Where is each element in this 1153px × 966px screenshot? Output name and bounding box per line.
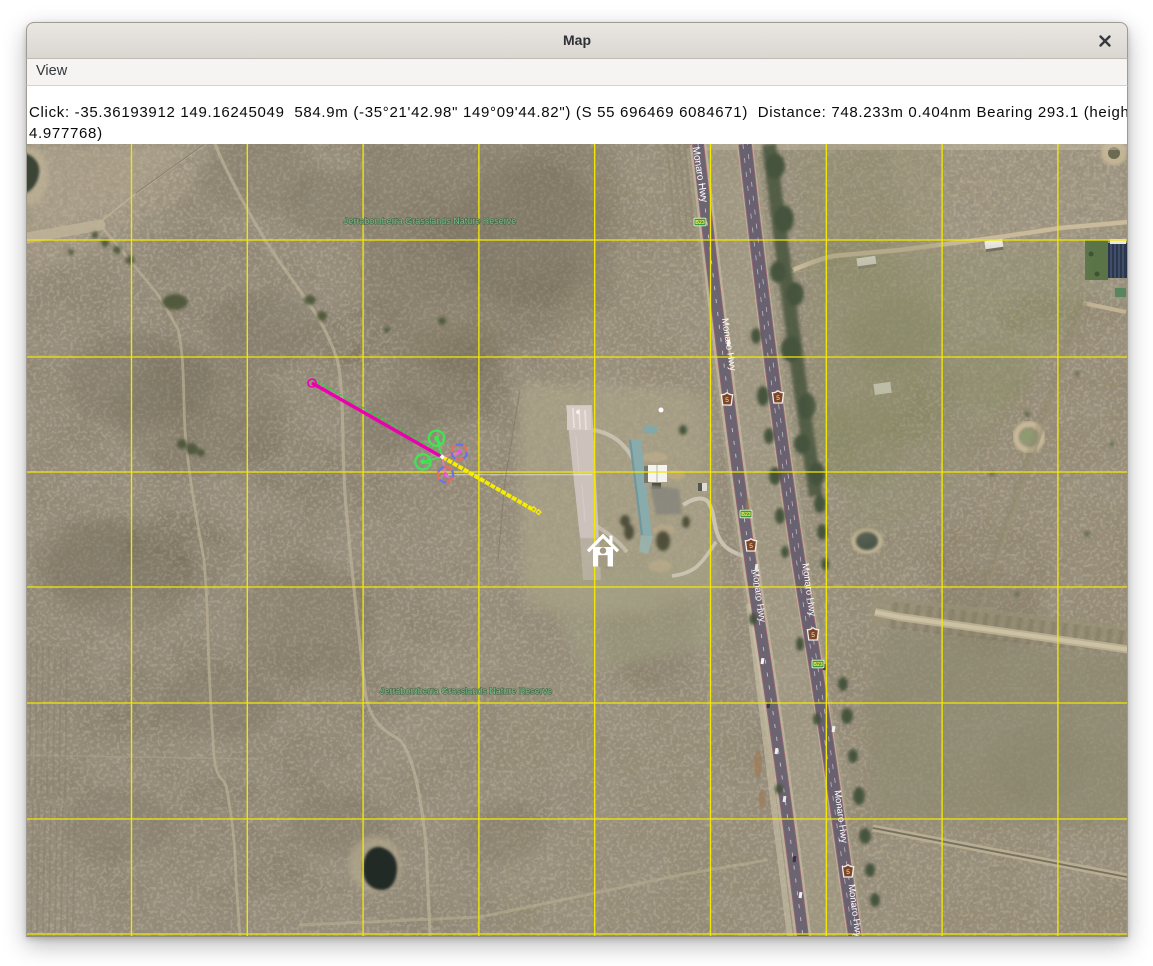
svg-text:Jerrabomberra Grasslands Natur: Jerrabomberra Grasslands Nature Reserve [344, 216, 517, 226]
svg-text:B23: B23 [695, 220, 705, 226]
svg-text:5: 5 [725, 397, 729, 404]
svg-text:Jerrabomberra Grasslands Natur: Jerrabomberra Grasslands Nature Reserve [380, 686, 553, 696]
